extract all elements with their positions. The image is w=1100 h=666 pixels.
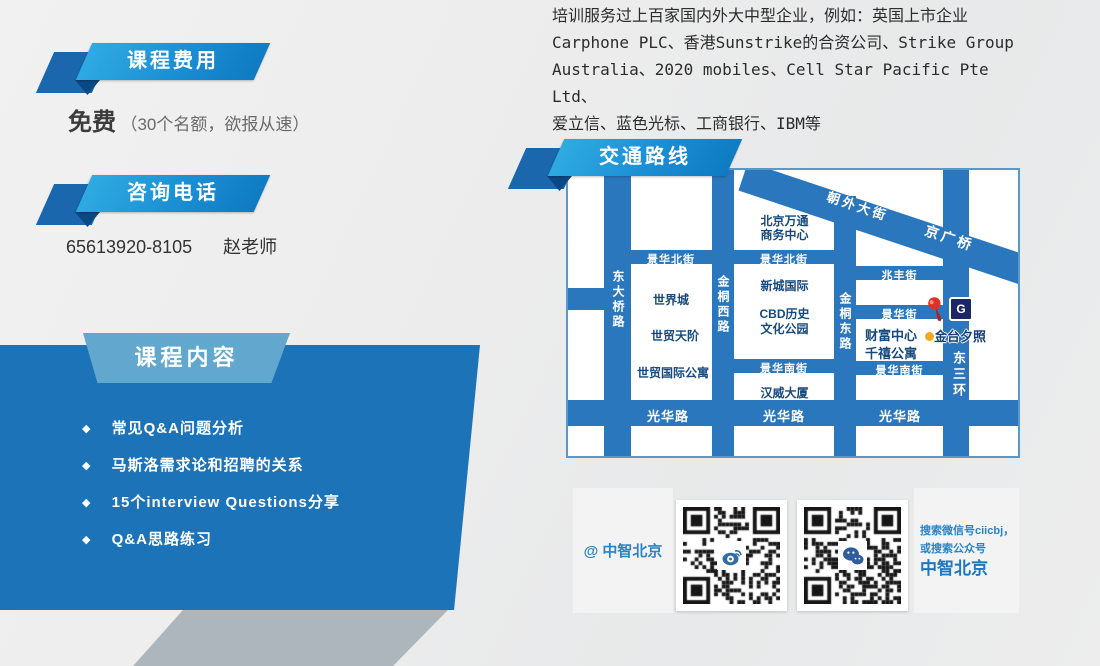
intro-line: 培训服务过上百家国内外大中型企业，例如：英国上市企业 bbox=[552, 2, 1042, 29]
course-content-banner: 课程内容 bbox=[83, 333, 290, 383]
map-canvas: 朝外大街 京广桥 景华北街 景华北街 兆丰街 景华街 景华南街 景华南街 光华路… bbox=[568, 170, 1018, 456]
wechat-search-line2: 或搜索公众号 bbox=[920, 540, 1013, 558]
place-wantong-line1: 北京万通 bbox=[735, 214, 834, 228]
place-fortune-center: 财富中心 bbox=[862, 325, 920, 344]
wechat-search-line1: 搜索微信号ciicbj， bbox=[920, 522, 1013, 540]
weibo-handle: @ 中智北京 bbox=[584, 540, 663, 561]
place-xincheng-intl: 新城国际 bbox=[735, 277, 834, 294]
course-content-box: ◆ 常见Q&A问题分析 ◆ 马斯洛需求论和招聘的关系 ◆ 15个intervie… bbox=[0, 345, 480, 610]
place-jintai-xizhao: 金台夕照 bbox=[934, 326, 986, 345]
fee-note: （30个名额，欲报从速） bbox=[120, 115, 309, 134]
course-content-list: ◆ 常见Q&A问题分析 ◆ 马斯洛需求论和招聘的关系 ◆ 15个intervie… bbox=[82, 421, 340, 569]
fee-row: 免费 （30个名额，欲报从速） bbox=[68, 102, 309, 137]
course-content-item: ◆ Q&A思路练习 bbox=[82, 532, 340, 549]
diamond-bullet-icon: ◆ bbox=[82, 423, 91, 435]
course-fee-banner-label: 课程费用 bbox=[84, 43, 262, 80]
intro-line: Carphone PLC、香港Sunstrike的合资公司、Strike Gro… bbox=[552, 29, 1042, 56]
ribbon-shape: 咨询电话 bbox=[76, 175, 270, 212]
road-label-jintong-west: 金桐西路 bbox=[715, 275, 732, 335]
place-wantong: 北京万通 商务中心 bbox=[735, 214, 834, 242]
phone-banner-label: 咨询电话 bbox=[84, 175, 262, 212]
ribbon-shape: 交通路线 bbox=[548, 139, 742, 176]
transit-map: 朝外大街 京广桥 景华北街 景华北街 兆丰街 景华街 景华南街 景华南街 光华路… bbox=[566, 168, 1020, 458]
intro-line: Australia、2020 mobiles、Cell Star Pacific… bbox=[552, 56, 1042, 110]
weibo-handle-panel: @ 中智北京 bbox=[573, 488, 673, 613]
weibo-qr-code bbox=[676, 500, 787, 611]
flyer-page: 培训服务过上百家国内外大中型企业，例如：英国上市企业 Carphone PLC、… bbox=[0, 0, 1100, 666]
decorative-gray-band bbox=[120, 610, 455, 666]
route-banner: 交通路线 bbox=[510, 136, 760, 196]
weibo-logo-icon bbox=[717, 541, 746, 570]
place-world-city: 世界城 bbox=[630, 291, 712, 308]
diamond-bullet-icon: ◆ bbox=[82, 460, 91, 472]
course-content-item-label: Q&A思路练习 bbox=[112, 531, 212, 548]
course-fee-banner: 课程费用 bbox=[38, 40, 288, 100]
place-millennium-apartment: 千禧公寓 bbox=[862, 343, 920, 362]
place-cbd-line1: CBD历史 bbox=[735, 307, 834, 322]
course-content-banner-label: 课程内容 bbox=[83, 333, 290, 383]
place-cbd-park: CBD历史 文化公园 bbox=[735, 307, 834, 337]
road-label-guanghua-west: 光华路 bbox=[618, 406, 718, 425]
road-label-jinghua-south-east: 景华南街 bbox=[856, 362, 943, 378]
place-shimao-tianjie: 世贸天阶 bbox=[634, 327, 716, 344]
place-cbd-line2: 文化公园 bbox=[735, 322, 834, 337]
road-label-guanghua-east: 光华路 bbox=[850, 406, 950, 425]
road-label-east-third-ring: 东三环 bbox=[949, 351, 968, 399]
place-shimao-intl-apartment: 世贸国际公寓 bbox=[626, 364, 720, 381]
road-label-jinghua-north-east: 景华北街 bbox=[734, 251, 834, 267]
fee-value: 免费 bbox=[68, 109, 116, 136]
course-content-item-label: 常见Q&A问题分析 bbox=[112, 420, 244, 437]
diamond-bullet-icon: ◆ bbox=[82, 497, 91, 509]
wechat-qr-code bbox=[797, 500, 908, 611]
course-content-item: ◆ 常见Q&A问题分析 bbox=[82, 421, 340, 438]
road-stub-west bbox=[568, 288, 604, 310]
course-content-item-label: 15个interview Questions分享 bbox=[112, 494, 340, 511]
location-dot-icon bbox=[923, 330, 936, 343]
road-label-dongdaqiao: 东大桥路 bbox=[610, 270, 627, 330]
road-label-jinghua-north-west: 景华北街 bbox=[630, 251, 712, 267]
course-content-item-label: 马斯洛需求论和招聘的关系 bbox=[112, 457, 304, 474]
diamond-bullet-icon: ◆ bbox=[82, 534, 91, 546]
phone-number: 65613920-8105 bbox=[66, 237, 192, 257]
course-content-item: ◆ 马斯洛需求论和招聘的关系 bbox=[82, 458, 340, 475]
road-label-jinghua-south-mid: 景华南街 bbox=[734, 360, 834, 376]
wechat-search-panel: 搜索微信号ciicbj， 或搜索公众号 中智北京 bbox=[914, 488, 1019, 613]
place-hanwei: 汉威大厦 bbox=[735, 384, 834, 401]
phone-row: 65613920-8105 赵老师 bbox=[66, 233, 277, 259]
phone-contact: 赵老师 bbox=[223, 237, 277, 257]
road-label-guanghua-mid: 光华路 bbox=[734, 406, 834, 425]
ribbon-shape: 课程费用 bbox=[76, 43, 270, 80]
road-label-zhaofeng: 兆丰街 bbox=[856, 267, 943, 283]
beijing-subway-icon: G bbox=[949, 297, 973, 321]
place-wantong-line2: 商务中心 bbox=[735, 228, 834, 242]
phone-banner: 咨询电话 bbox=[38, 172, 288, 232]
wechat-account-name: 中智北京 bbox=[920, 558, 1013, 580]
wechat-logo-icon bbox=[838, 541, 867, 570]
route-banner-label: 交通路线 bbox=[556, 139, 734, 176]
road-label-jintong-east: 金桐东路 bbox=[837, 292, 854, 352]
course-content-item: ◆ 15个interview Questions分享 bbox=[82, 495, 340, 512]
intro-line: 爱立信、蓝色光标、工商银行、IBM等 bbox=[552, 110, 1042, 137]
intro-paragraph: 培训服务过上百家国内外大中型企业，例如：英国上市企业 Carphone PLC、… bbox=[552, 2, 1042, 137]
